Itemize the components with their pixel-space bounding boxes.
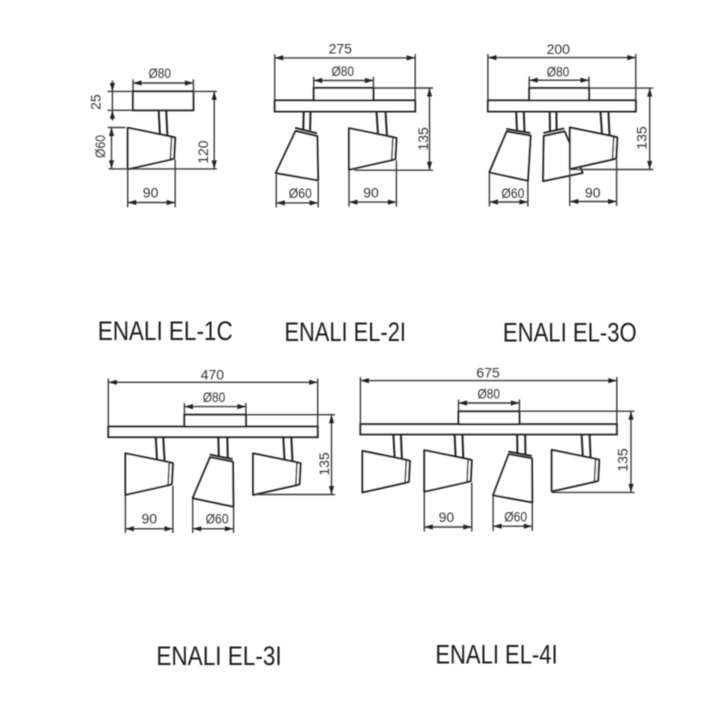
svg-text:90: 90 [585,184,601,200]
svg-text:675: 675 [476,364,500,380]
svg-text:Ø80: Ø80 [148,65,171,81]
svg-text:ENALI EL-3O: ENALI EL-3O [503,318,637,348]
svg-text:Ø60: Ø60 [501,185,524,201]
svg-text:135: 135 [634,126,650,150]
svg-text:Ø80: Ø80 [203,389,226,405]
svg-text:275: 275 [329,40,353,56]
svg-text:90: 90 [143,185,159,201]
svg-text:90: 90 [142,510,158,526]
svg-text:90: 90 [363,185,379,201]
svg-text:ENALI EL-1C: ENALI EL-1C [98,316,233,346]
svg-text:Ø60: Ø60 [92,135,108,158]
svg-text:Ø60: Ø60 [504,509,527,525]
svg-text:120: 120 [195,140,211,164]
svg-text:Ø60: Ø60 [289,185,312,201]
svg-text:ENALI EL-4I: ENALI EL-4I [435,640,557,670]
svg-text:Ø80: Ø80 [477,386,500,402]
svg-text:470: 470 [201,367,225,383]
svg-text:135: 135 [316,452,332,476]
svg-text:135: 135 [415,127,431,151]
svg-text:Ø80: Ø80 [331,63,354,79]
svg-text:Ø60: Ø60 [206,510,229,526]
svg-text:Ø80: Ø80 [547,64,570,80]
svg-text:135: 135 [615,448,631,472]
svg-text:90: 90 [439,509,455,525]
svg-text:200: 200 [547,41,571,57]
svg-text:25: 25 [87,94,103,110]
svg-text:ENALI EL-3I: ENALI EL-3I [156,641,281,671]
svg-text:ENALI EL-2I: ENALI EL-2I [284,317,406,347]
